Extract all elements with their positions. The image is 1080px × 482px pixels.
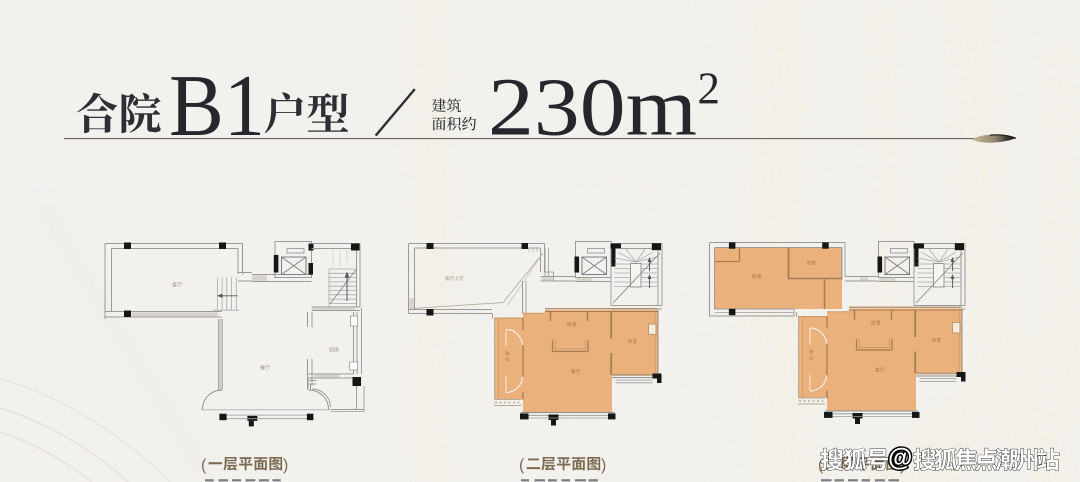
- svg-text:): ): [283, 457, 288, 474]
- svg-text:B1: B1: [169, 58, 265, 155]
- svg-text:(: (: [201, 457, 207, 474]
- svg-text:@: @: [888, 444, 912, 472]
- svg-text:): ): [601, 457, 606, 474]
- svg-text:230m: 230m: [488, 61, 697, 153]
- svg-text:2: 2: [698, 63, 721, 113]
- svg-text:(: (: [519, 457, 525, 474]
